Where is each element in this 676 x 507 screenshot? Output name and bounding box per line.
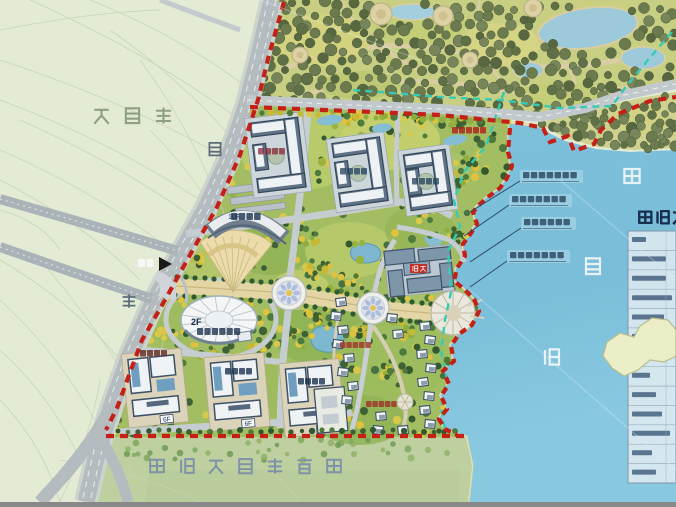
svg-text:2F: 2F <box>191 317 202 327</box>
svg-text:6F: 6F <box>163 416 171 424</box>
svg-text:10F: 10F <box>228 214 240 221</box>
svg-text:6F: 6F <box>244 420 252 428</box>
